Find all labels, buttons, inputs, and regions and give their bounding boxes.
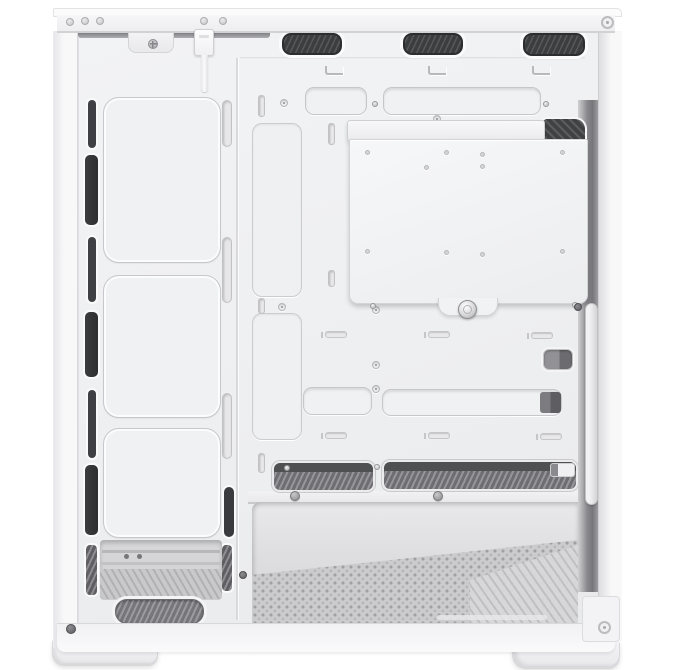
drive-bay-opening xyxy=(100,540,222,600)
front-panel-connector xyxy=(194,29,214,56)
top-frame-rail xyxy=(57,15,615,33)
drive-rail xyxy=(102,550,220,553)
rear-support-bar xyxy=(585,303,598,505)
front-panel-divider xyxy=(236,58,238,620)
drive-rail-screw xyxy=(137,554,142,559)
mounting-plate-rail xyxy=(347,120,545,141)
bottom-corner-screw xyxy=(598,621,611,634)
front-panel-edge xyxy=(53,31,78,648)
drive-bay-floor-mesh xyxy=(100,569,222,599)
rear-bottom-corner xyxy=(582,596,620,642)
top-corner-screw xyxy=(601,16,614,29)
rear-panel-edge xyxy=(598,31,622,643)
mounting-plate xyxy=(349,139,588,304)
bottom-frame-rail xyxy=(57,623,615,652)
bottom-intake-mesh xyxy=(115,599,204,624)
drive-rail xyxy=(100,562,222,565)
drive-rail-screw xyxy=(124,554,129,559)
pc-case-product-photo xyxy=(0,0,699,670)
tray-top-edge xyxy=(240,57,585,59)
thumbscrew xyxy=(458,300,477,319)
psu-floor-highlight xyxy=(437,615,547,620)
bracket-screw xyxy=(148,39,158,49)
front-panel-cable xyxy=(201,55,208,92)
